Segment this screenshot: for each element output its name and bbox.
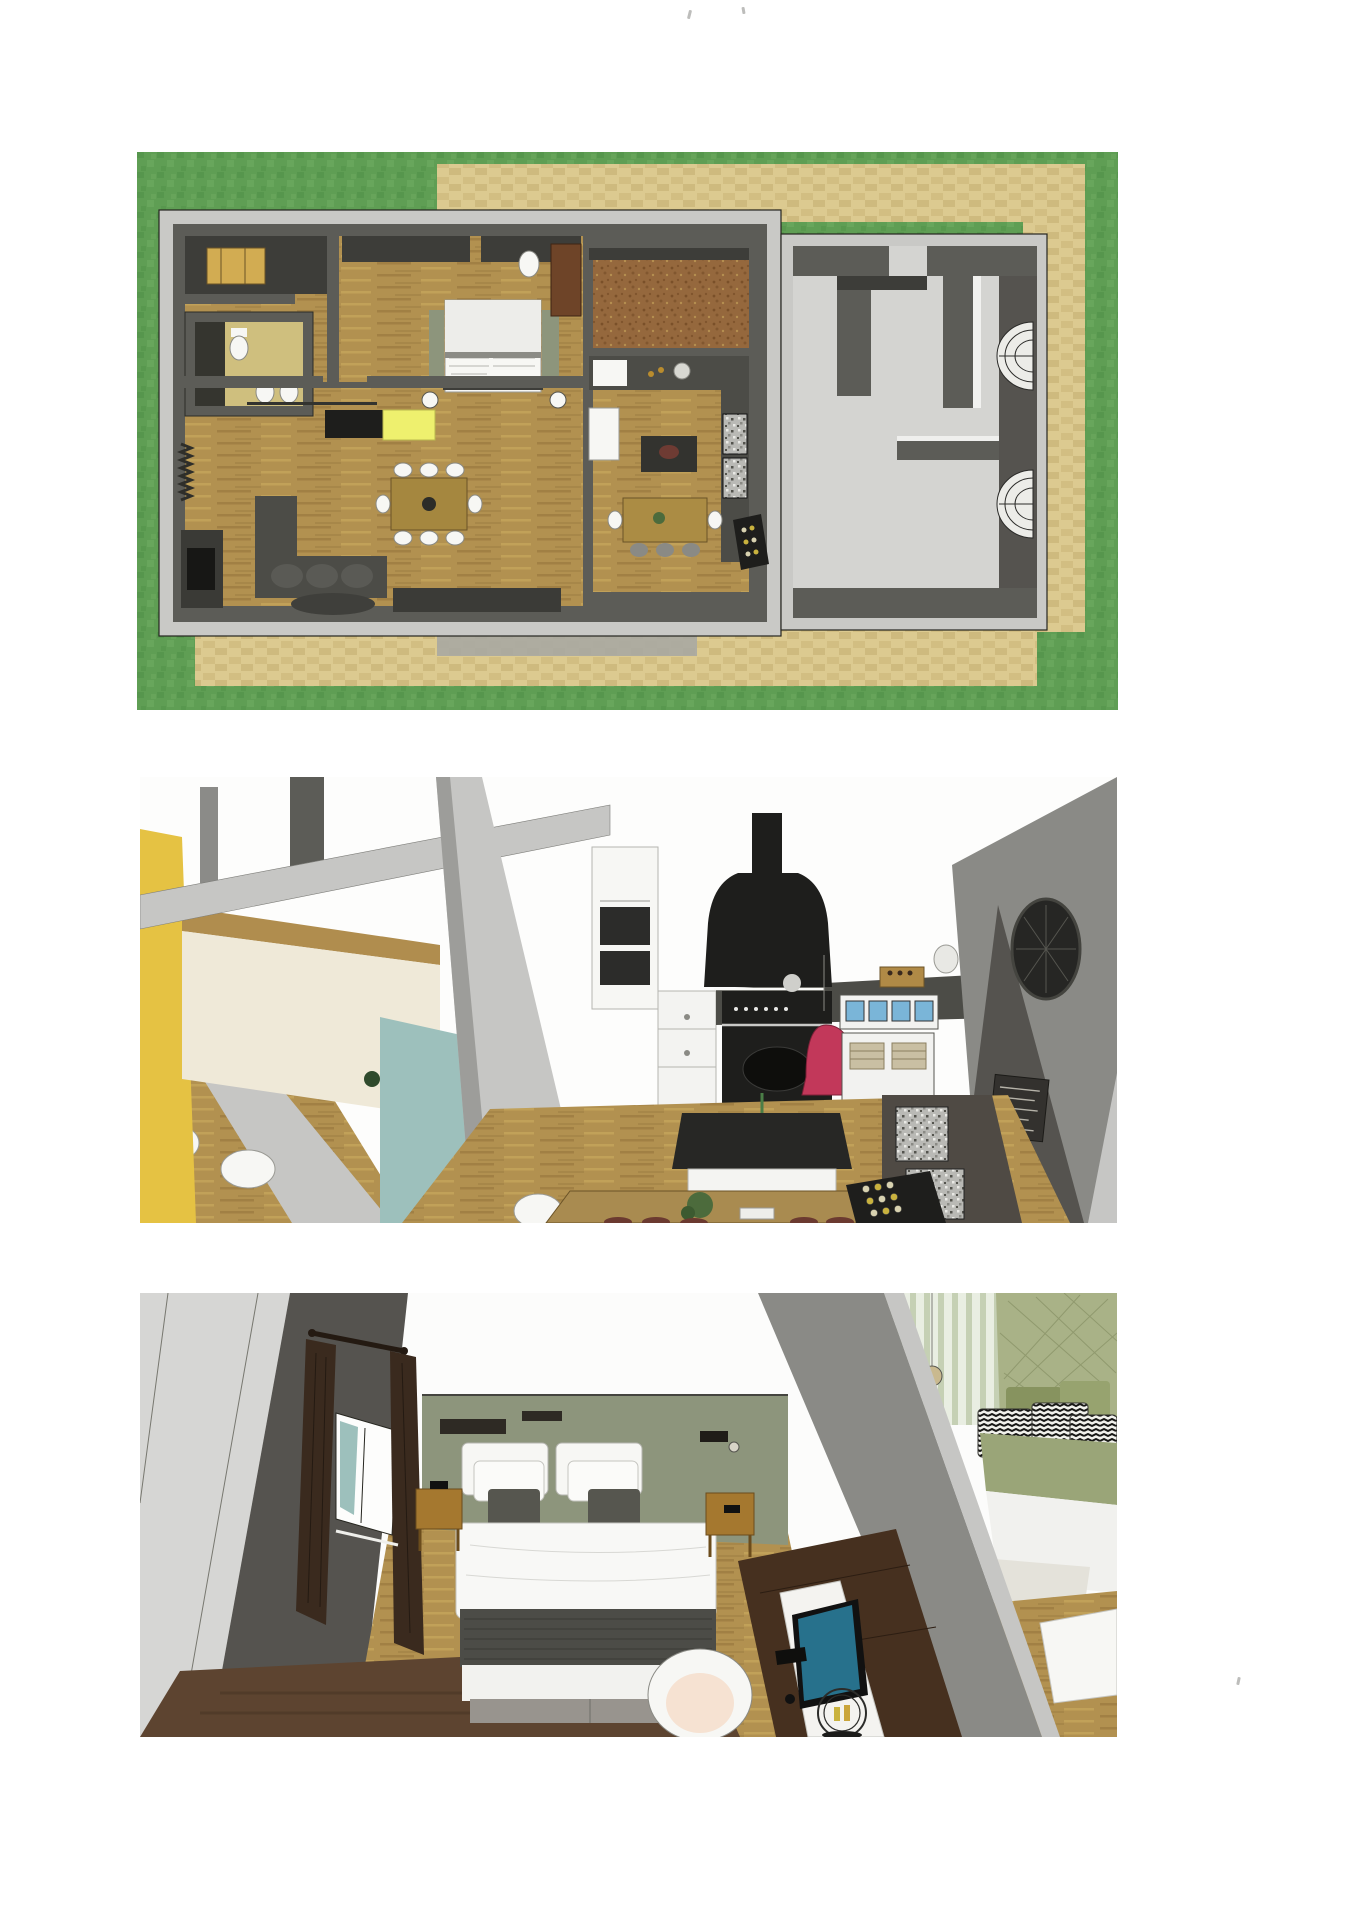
kitchen-floor-zone: [402, 1093, 1070, 1223]
closet: [342, 236, 470, 262]
plate-stand: [934, 945, 958, 973]
wall-shelf: [247, 402, 377, 405]
sink: [593, 360, 627, 386]
wall-clock: [1012, 899, 1080, 999]
scan-artifact: [687, 10, 692, 19]
oven: [600, 907, 650, 945]
main-house: [159, 210, 781, 636]
desk: [551, 244, 581, 316]
oven: [600, 951, 650, 985]
wall-console: [700, 1431, 728, 1442]
scan-artifact: [1236, 1677, 1241, 1685]
bathroom: [185, 312, 313, 416]
tray: [740, 1208, 774, 1219]
floating-shelf: [522, 1411, 562, 1421]
accent-pillow: [588, 1489, 640, 1527]
egg-chair: [648, 1649, 752, 1737]
floor-mat: [393, 588, 561, 612]
desk-chair: [519, 251, 539, 277]
shower: [195, 322, 225, 406]
plant: [364, 1071, 380, 1087]
accent-pillow: [488, 1489, 540, 1527]
bedside-table: [550, 392, 566, 408]
wicker-basket: [892, 1043, 926, 1069]
duvet: [456, 1523, 716, 1619]
bedside-rug: [542, 310, 559, 382]
bedside-table: [422, 392, 438, 408]
cooktop: [723, 458, 747, 498]
cooktop: [723, 414, 747, 454]
daybed: [1040, 1609, 1117, 1703]
toilet: [230, 336, 248, 360]
bedroom-panel: [140, 1293, 1117, 1737]
drawer-unit: [658, 991, 716, 1107]
fridge: [589, 408, 619, 460]
sideboard: [325, 410, 383, 438]
bedside-rug: [429, 310, 444, 382]
chair: [221, 1150, 275, 1188]
wall-lamp: [729, 1442, 739, 1452]
wicker-basket: [850, 1043, 884, 1069]
entry-hall: [185, 236, 327, 304]
yellow-rug: [383, 410, 435, 440]
annex-garage: [781, 234, 1047, 630]
cork-room-floor: [589, 248, 749, 348]
fireplace: [181, 530, 223, 608]
floating-shelf: [440, 1419, 506, 1434]
round-rug: [291, 593, 375, 615]
mouse: [785, 1694, 795, 1704]
wall: [327, 236, 339, 384]
floor-plan-panel: [137, 152, 1118, 710]
kitchen-panel: [140, 777, 1117, 1223]
island: [641, 436, 697, 472]
scan-artifact: [741, 7, 745, 14]
plate: [674, 363, 690, 379]
scanned-page: [0, 0, 1359, 1920]
bottle-crate: [880, 967, 924, 987]
